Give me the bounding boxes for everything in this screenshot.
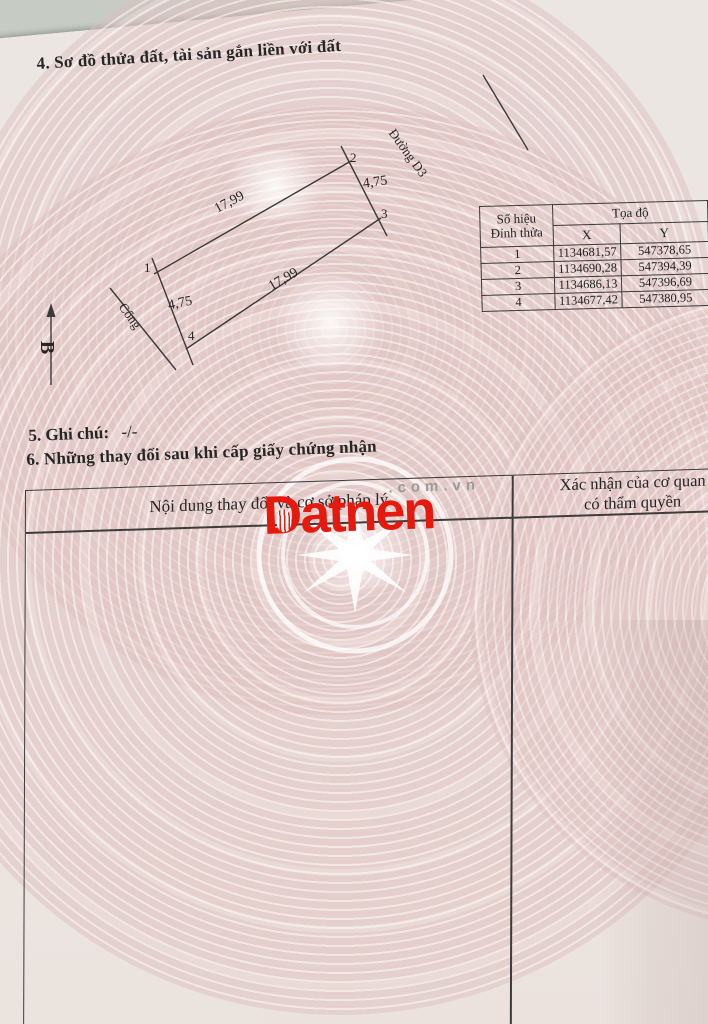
- corner-header-line2: Đỉnh thửa: [490, 224, 543, 240]
- coord-y: 547380,95: [622, 289, 708, 307]
- changes-table-divider: [510, 476, 514, 1024]
- north-arrow-icon: [47, 303, 56, 317]
- section5-line: 5. Ghi chú: -/-: [28, 422, 138, 446]
- photographed-land-certificate-page: 4. Sơ đồ thửa đất, tài sản gắn liền với …: [0, 0, 708, 1024]
- datnen-watermark: .com.vn Datnen: [262, 472, 504, 550]
- coord-corner-header: Số hiệu Đỉnh thửa: [480, 205, 554, 248]
- vertex-id: 4: [482, 294, 555, 312]
- section5-label: 5. Ghi chú:: [28, 423, 109, 445]
- brand-hand-icon: [276, 509, 292, 533]
- coord-x: 1134690,28: [554, 260, 621, 278]
- section5-value: -/-: [121, 422, 138, 442]
- coord-x: 1134677,42: [555, 292, 622, 310]
- vertex-label-3: 3: [381, 206, 388, 222]
- col2-header-line2: có thẩm quyền: [584, 491, 681, 513]
- coord-x: 1134686,13: [554, 276, 621, 294]
- edge-label-right: 4,75: [362, 173, 388, 192]
- changes-table: Nội dung thay đổi và cơ sở pháp lý Xác n…: [23, 465, 708, 1024]
- coord-col-y: Y: [620, 222, 708, 244]
- vertex-label-1: 1: [144, 260, 151, 276]
- vertex-id: 2: [481, 262, 554, 280]
- coord-col-x: X: [553, 224, 620, 246]
- vertex-id: 1: [481, 246, 554, 264]
- vertex-id: 3: [481, 278, 554, 296]
- col2-header-line1: Xác nhận của cơ quan: [560, 471, 706, 495]
- coordinates-table: Số hiệu Đỉnh thửa Tọa độ X Y 1 1134681,5…: [479, 200, 708, 312]
- changes-col2-header: Xác nhận của cơ quan có thẩm quyền: [514, 469, 708, 516]
- north-label: B: [35, 341, 58, 354]
- vertex-label-4: 4: [188, 328, 195, 344]
- coord-x: 1134681,57: [554, 244, 621, 262]
- vertex-label-2: 2: [350, 150, 357, 166]
